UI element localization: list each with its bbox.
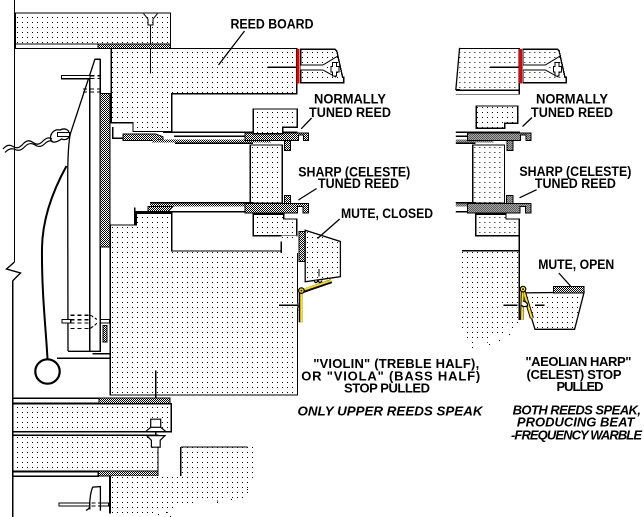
- svg-text:ONLY UPPER REEDS SPEAK: ONLY UPPER REEDS SPEAK: [298, 404, 485, 419]
- svg-text:TUNED REED: TUNED REED: [535, 176, 616, 191]
- svg-text:STOP PULLED: STOP PULLED: [344, 380, 430, 395]
- svg-text:TUNED REED: TUNED REED: [318, 176, 399, 191]
- svg-text:-FREQUENCY WARBLE: -FREQUENCY WARBLE: [511, 427, 642, 442]
- svg-text:MUTE, OPEN: MUTE, OPEN: [538, 257, 614, 272]
- svg-text:PULLED: PULLED: [557, 379, 604, 394]
- svg-text:REED BOARD: REED BOARD: [231, 17, 314, 32]
- svg-text:TUNED REED: TUNED REED: [531, 105, 613, 120]
- svg-text:TUNED REED: TUNED REED: [309, 105, 391, 120]
- svg-text:MUTE, CLOSED: MUTE, CLOSED: [341, 206, 433, 221]
